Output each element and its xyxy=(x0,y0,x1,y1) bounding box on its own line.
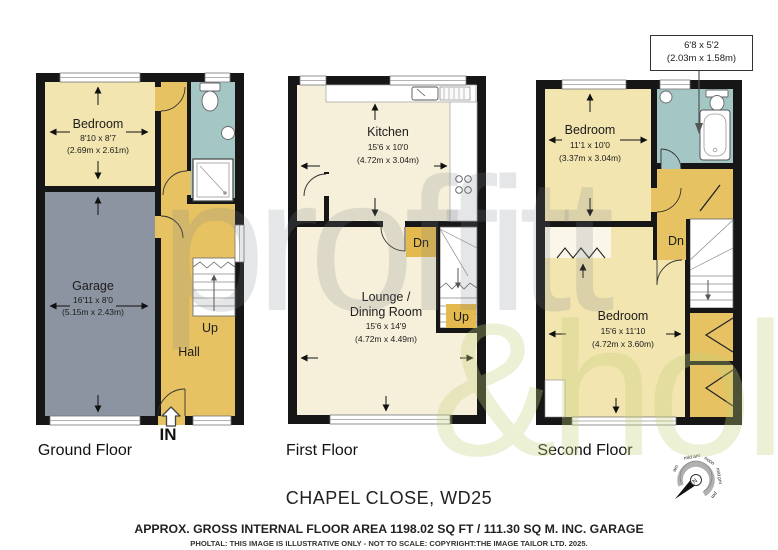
closet xyxy=(545,380,565,417)
stairs-up xyxy=(193,258,235,316)
ground-floor-plan: Bedroom 8'10 x 8'7 (2.69m x 2.61m) Garag… xyxy=(36,73,244,427)
garage-name: Garage xyxy=(72,279,114,293)
bedroom-dims-imperial: 8'10 x 8'7 xyxy=(80,133,116,143)
floor-area-note: APPROX. GROSS INTERNAL FLOOR AREA 1198.0… xyxy=(0,522,778,536)
bedroom-back-dims-imperial: 15'6 x 11'10 xyxy=(601,326,646,336)
garage-dims-imperial: 16'11 x 8'0 xyxy=(73,295,113,305)
kitchen-dims-imperial: 15'6 x 10'0 xyxy=(368,142,409,152)
disclaimer: PHOLTAL: THIS IMAGE IS ILLUSTRATIVE ONLY… xyxy=(0,539,778,548)
first-floor-label: First Floor xyxy=(252,442,392,460)
stairs-down-label: Dn xyxy=(668,234,684,248)
plan-title: CHAPEL CLOSE, WD25 xyxy=(0,488,778,509)
callout-imperial: 6'8 x 5'2 xyxy=(684,40,719,51)
second-floor-label: Second Floor xyxy=(515,442,655,460)
kitchen-name: Kitchen xyxy=(367,125,409,139)
bedroom-name: Bedroom xyxy=(73,117,124,131)
bedroom-back-name: Bedroom xyxy=(598,309,649,323)
landing xyxy=(657,169,733,219)
sun-compass-icon: N am mid am noon mid pm pm xyxy=(648,436,748,536)
lounge-dims-imperial: 15'6 x 14'9 xyxy=(366,321,407,331)
stairs-up-label: Up xyxy=(453,310,469,324)
stairs-down xyxy=(686,219,733,313)
compass-label-am: am xyxy=(672,464,681,473)
kitchen-sink xyxy=(412,87,470,100)
stairs-up-label: Up xyxy=(202,321,218,335)
stairs-down-label: Dn xyxy=(413,236,429,250)
bedroom-dims-metric: (2.69m x 2.61m) xyxy=(67,145,129,155)
lounge-name-2: Dining Room xyxy=(350,305,422,319)
callout-arrow xyxy=(692,69,706,137)
shower xyxy=(193,159,233,201)
lounge-name-1: Lounge / xyxy=(362,290,411,304)
floorplan-page: Bedroom 8'10 x 8'7 (2.69m x 2.61m) Garag… xyxy=(0,0,778,550)
bedroom-front-dims-imperial: 11'1 x 10'0 xyxy=(570,140,610,150)
sink xyxy=(222,127,235,140)
first-floor-plan: Kitchen 15'6 x 10'0 (4.72m x 3.04m) Loun… xyxy=(288,76,486,426)
wardrobes xyxy=(686,313,733,417)
wall xyxy=(653,227,657,260)
bedroom-front-name: Bedroom xyxy=(565,123,616,137)
toilet xyxy=(200,83,220,111)
callout-metric: (2.03m x 1.58m) xyxy=(667,53,736,64)
bathroom-dimension-callout: 6'8 x 5'2 (2.03m x 1.58m) xyxy=(650,35,753,71)
compass-label-midam: mid am xyxy=(683,453,700,462)
lounge-dims-metric: (4.72m x 4.49m) xyxy=(355,334,417,344)
sink xyxy=(660,91,672,103)
bedroom-front-dims-metric: (3.37m x 3.04m) xyxy=(559,153,621,163)
hall-name: Hall xyxy=(178,345,200,359)
kitchen-dims-metric: (4.72m x 3.04m) xyxy=(357,155,419,165)
compass-label-midpm: mid pm xyxy=(714,467,723,484)
bedroom-back-dims-metric: (4.72m x 3.60m) xyxy=(592,339,654,349)
second-floor-plan: Bedroom 11'1 x 10'0 (3.37m x 3.04m) Dn B… xyxy=(536,80,742,428)
ground-floor-label: Ground Floor xyxy=(15,442,155,460)
garage-dims-metric: (5.15m x 2.43m) xyxy=(62,307,124,317)
